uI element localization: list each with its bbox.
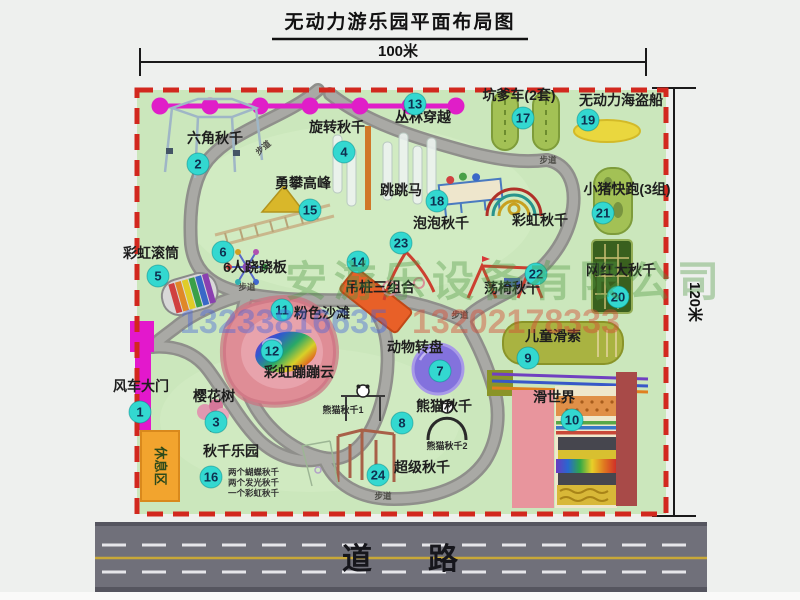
item-number: 15 — [303, 203, 317, 218]
item-label: 动物转盘 — [387, 339, 443, 355]
item-label: 樱花树 — [193, 388, 235, 404]
watermark-phone-1: 13233816635 — [180, 303, 388, 341]
road-label: 道路 — [342, 543, 514, 576]
item-number: 9 — [524, 351, 531, 366]
item-label: 跳跳马 — [380, 182, 422, 198]
item-number: 8 — [398, 416, 405, 431]
item-label: 坑爹车(2套) — [482, 87, 555, 103]
item-number: 5 — [154, 269, 161, 284]
panda-swing-1-label: 熊猫秋千1 — [322, 404, 363, 415]
item-label: 勇攀高峰 — [275, 175, 332, 191]
trail-label: 步道 — [238, 282, 256, 292]
item-label: 秋千乐园 — [203, 443, 259, 459]
item-number: 17 — [516, 111, 530, 126]
item-number: 6 — [219, 245, 226, 260]
item-label: 无动力海盗船 — [578, 92, 663, 108]
item-label: 超级秋千 — [393, 459, 450, 475]
trail-label: 步道 — [374, 491, 392, 501]
item-number: 3 — [212, 415, 219, 430]
pig-run-track-icon — [594, 168, 632, 234]
watermark-phone-2: 13202178333 — [412, 303, 620, 341]
item-label: 六角秋千 — [187, 130, 243, 146]
item-label: 彩虹滚筒 — [122, 245, 179, 261]
item-label: 彩虹蹦蹦云 — [263, 364, 334, 380]
page-title: 无动力游乐园平面布局图 — [284, 10, 515, 33]
item-number: 18 — [430, 194, 444, 209]
item-number: 24 — [371, 468, 386, 483]
swing-park-note: 一个彩虹秋千 — [228, 488, 280, 498]
item-label: 风车大门 — [113, 378, 169, 394]
item-number: 1 — [136, 405, 143, 420]
dimension-top-label: 100米 — [378, 42, 419, 60]
item-number: 2 — [194, 157, 201, 172]
swing-park-note: 两个蝴蝶秋千 — [228, 467, 280, 477]
item-label: 小猪快跑(3组) — [583, 181, 670, 197]
rest-area-box: 休息区 — [141, 431, 179, 501]
item-number: 21 — [596, 206, 610, 221]
trail-label: 步道 — [539, 155, 557, 165]
swing-park-note: 两个发光秋千 — [228, 478, 280, 488]
rest-area-label: 休息区 — [153, 445, 168, 485]
watermark-company: 安游乐设备有限公司 — [285, 258, 726, 305]
road: 道路 — [0, 522, 800, 600]
item-number: 4 — [340, 145, 348, 160]
item-number: 23 — [394, 236, 408, 251]
item-label: 熊猫秋千 — [416, 398, 472, 414]
screenshot-stage: 无动力游乐园平面布局图 100米 120米 — [0, 0, 800, 600]
item-label: 泡泡秋千 — [413, 215, 469, 231]
item-number: 12 — [265, 344, 279, 359]
item-number: 10 — [565, 413, 579, 428]
item-number: 7 — [436, 364, 443, 379]
panda-swing-2-label: 熊猫秋千2 — [426, 440, 467, 451]
item-number: 19 — [581, 113, 595, 128]
item-label: 旋转秋千 — [308, 119, 365, 135]
item-number: 13 — [408, 97, 422, 112]
rainbow-swing-label: 彩虹秋千 — [511, 212, 568, 228]
item-label: 滑世界 — [533, 389, 576, 405]
item-label: 6人跷跷板 — [223, 259, 288, 275]
item-number: 16 — [204, 470, 218, 485]
park-plan-svg: 无动力游乐园平面布局图 100米 120米 — [0, 0, 800, 600]
